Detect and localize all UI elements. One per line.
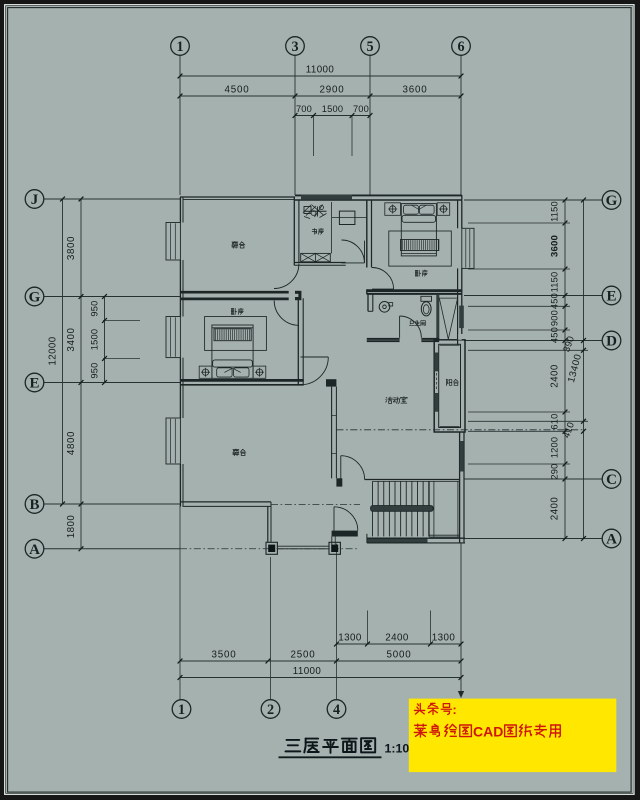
svg-text:E: E — [606, 289, 616, 305]
svg-text:1300: 1300 — [432, 632, 456, 643]
svg-text:1500: 1500 — [90, 329, 100, 350]
svg-text:1150: 1150 — [550, 201, 560, 222]
svg-text:11000: 11000 — [306, 64, 335, 75]
svg-text:2900: 2900 — [320, 84, 345, 95]
svg-text:4800: 4800 — [66, 431, 77, 455]
svg-text:2: 2 — [267, 702, 274, 718]
svg-text:11000: 11000 — [293, 666, 322, 677]
svg-text:3600: 3600 — [403, 84, 428, 95]
svg-text:B: B — [29, 497, 39, 513]
svg-text:700: 700 — [296, 104, 312, 114]
svg-text:2500: 2500 — [291, 649, 316, 660]
svg-text:3500: 3500 — [212, 649, 237, 660]
svg-text:3: 3 — [291, 39, 298, 55]
svg-text:950: 950 — [90, 300, 100, 316]
svg-text:CAD: CAD — [473, 723, 503, 739]
svg-text:1: 1 — [176, 39, 183, 55]
svg-text:950: 950 — [90, 362, 100, 378]
svg-text:700: 700 — [353, 104, 369, 114]
svg-text:1800: 1800 — [66, 515, 77, 539]
svg-text:1300: 1300 — [338, 632, 362, 643]
svg-text:2400: 2400 — [385, 632, 409, 643]
svg-text:450: 450 — [550, 327, 560, 343]
svg-text:2400: 2400 — [550, 364, 561, 388]
svg-text:1200: 1200 — [550, 437, 560, 458]
svg-text:4500: 4500 — [225, 84, 250, 95]
svg-text:4: 4 — [333, 702, 340, 718]
svg-text:2400: 2400 — [550, 497, 561, 521]
svg-text:6: 6 — [457, 39, 464, 55]
svg-text:1150: 1150 — [550, 272, 560, 293]
svg-text:900: 900 — [550, 310, 560, 326]
svg-text:5: 5 — [366, 39, 373, 55]
svg-text:290: 290 — [550, 463, 560, 479]
svg-text:G: G — [606, 193, 618, 209]
svg-text:1: 1 — [178, 702, 185, 718]
svg-text:J: J — [31, 192, 39, 208]
svg-text:E: E — [29, 376, 39, 392]
svg-text:D: D — [606, 334, 617, 350]
svg-text:A: A — [29, 542, 40, 558]
svg-text:G: G — [29, 290, 41, 306]
svg-text::: : — [453, 703, 457, 717]
svg-text:5000: 5000 — [387, 649, 412, 660]
svg-text:450: 450 — [550, 293, 560, 309]
svg-text:3800: 3800 — [66, 236, 77, 260]
svg-text:12000: 12000 — [48, 336, 59, 365]
svg-text:C: C — [606, 472, 617, 488]
svg-text:3400: 3400 — [66, 327, 77, 351]
svg-text:610: 610 — [550, 413, 560, 429]
svg-text:A: A — [606, 532, 617, 548]
svg-text:3600: 3600 — [550, 235, 561, 257]
svg-text:1500: 1500 — [322, 104, 343, 114]
